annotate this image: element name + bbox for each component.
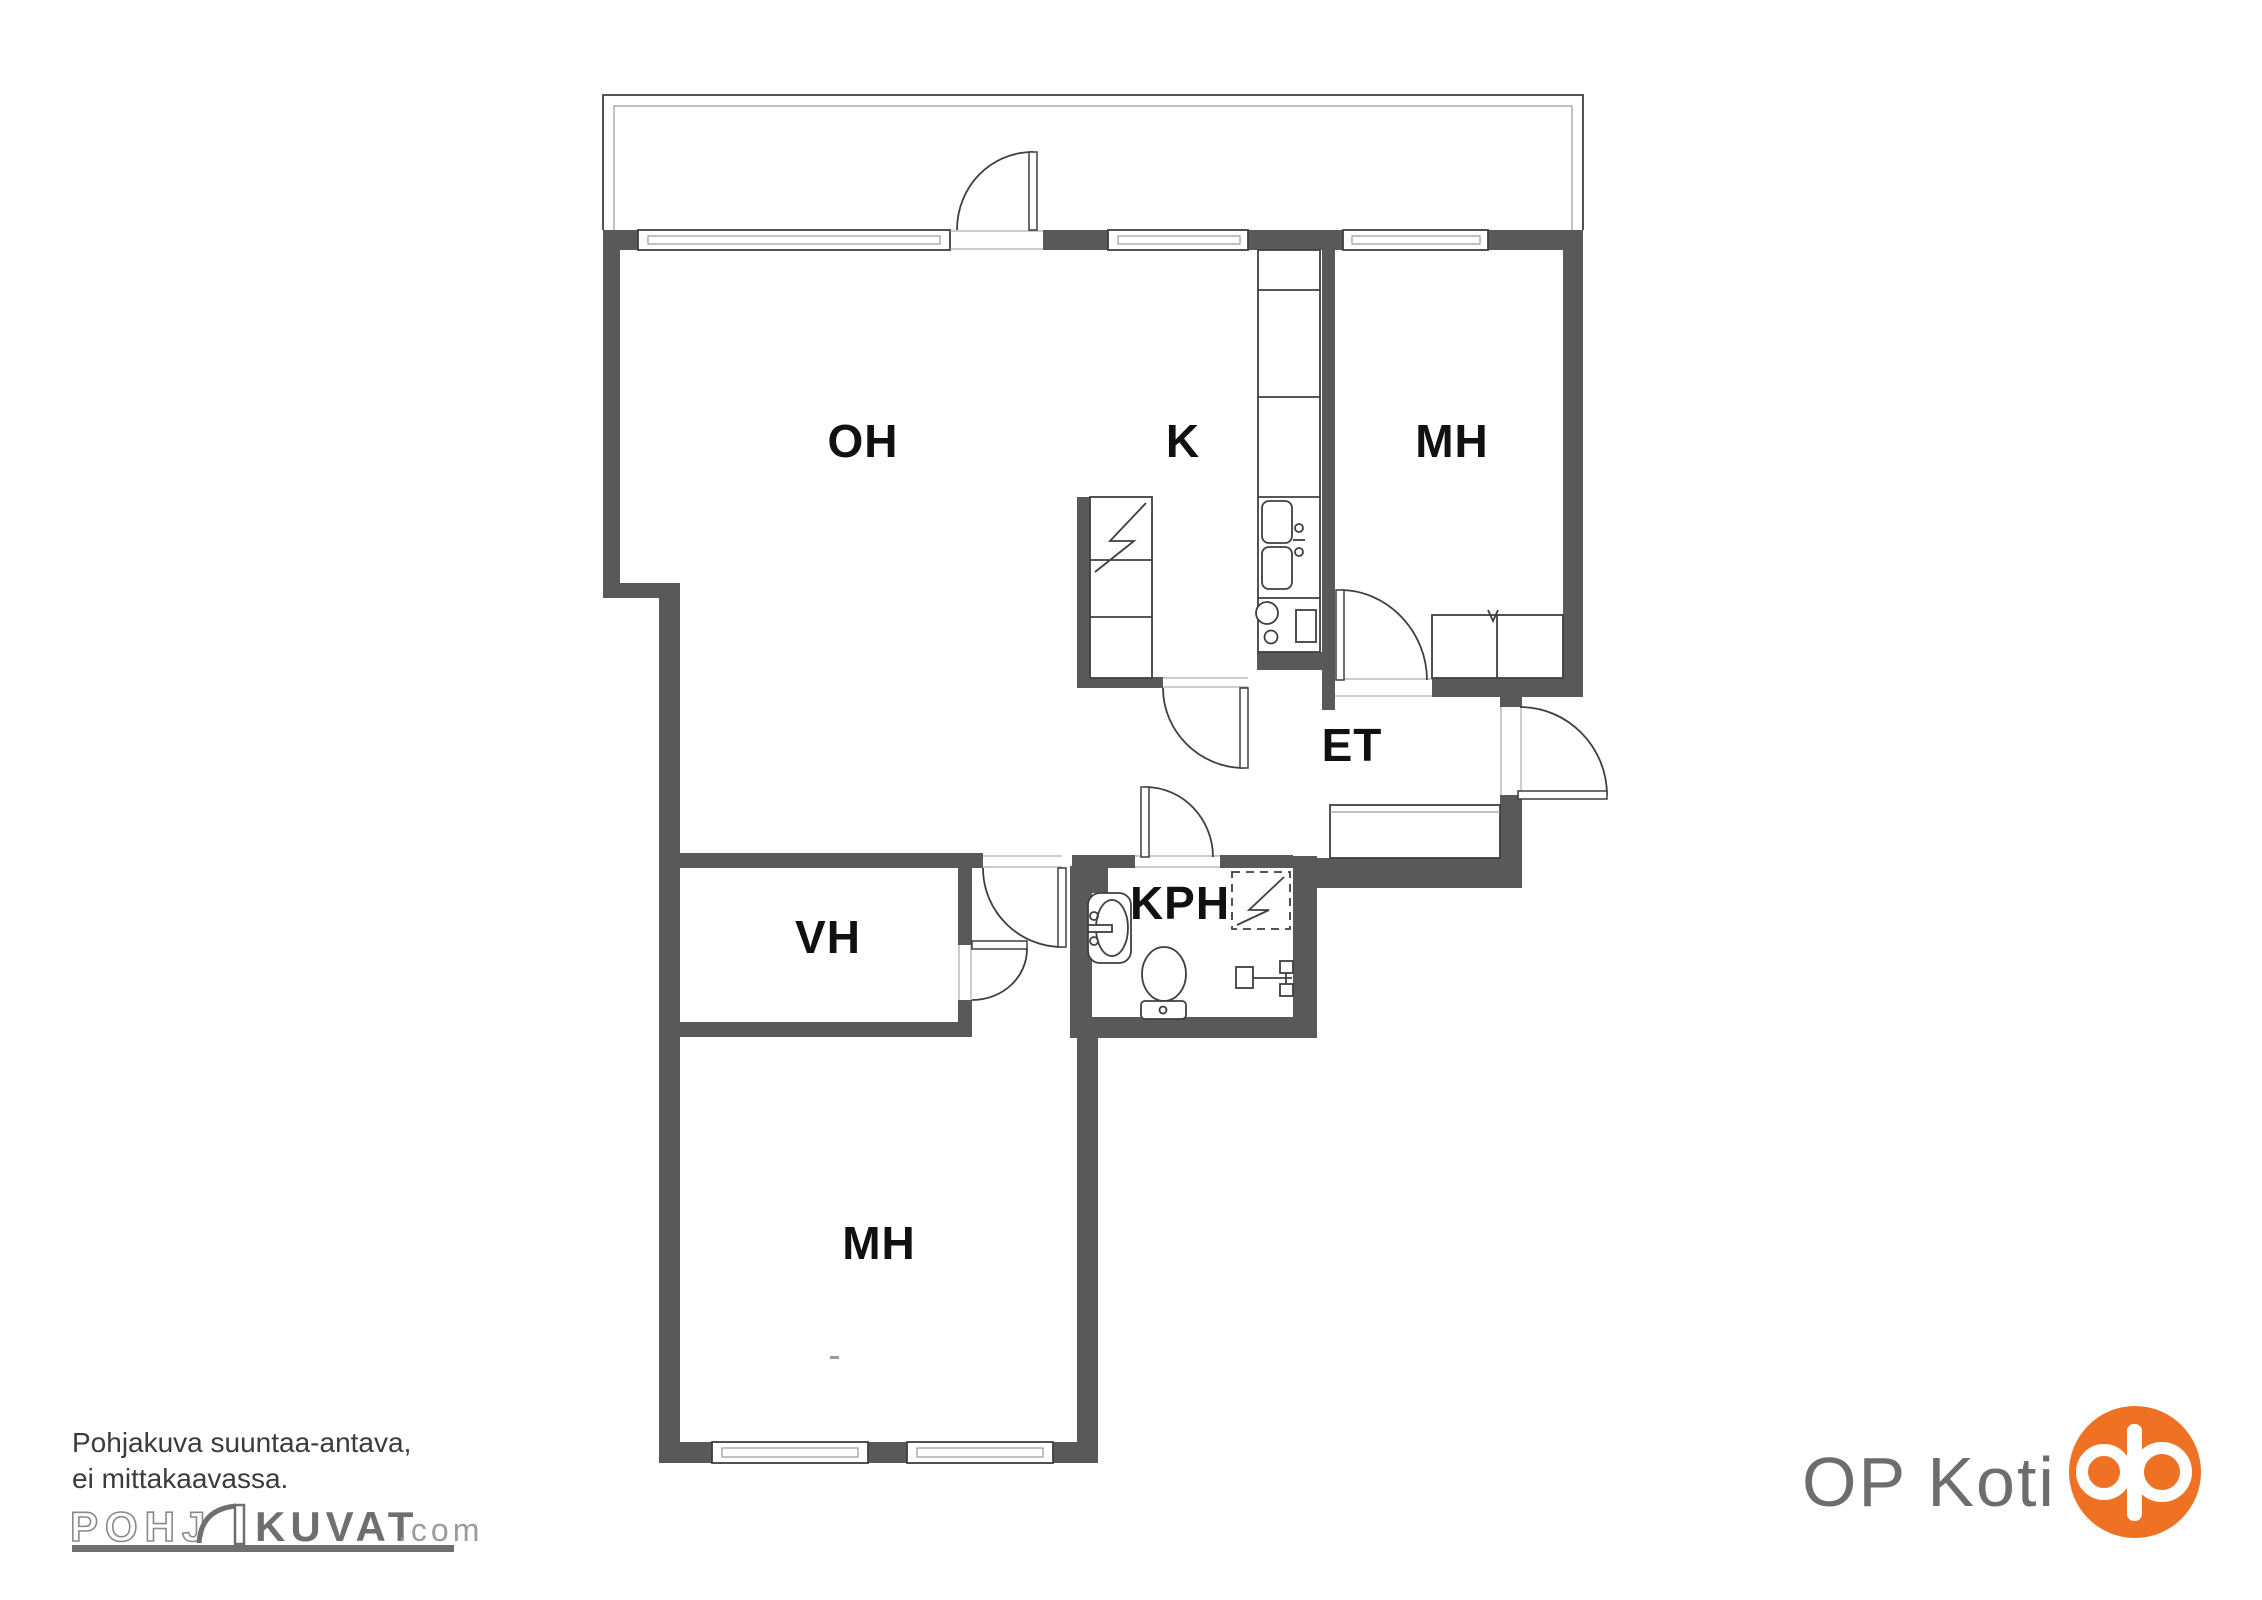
disclaimer-line-1: Pohjakuva suuntaa-antava,: [72, 1427, 411, 1458]
mh-top-door: [1336, 590, 1427, 680]
entry-door: [1518, 707, 1607, 799]
page: OH K MH ET KPH VH MH Pohjakuva suuntaa-a…: [0, 0, 2262, 1600]
kitchen-fixtures: [1090, 250, 1320, 678]
toilet: [1141, 947, 1186, 1019]
kitchen-door: [1163, 688, 1248, 768]
op-logo-icon: [2069, 1406, 2201, 1538]
disclaimer-line-2: ei mittakaavassa.: [72, 1463, 288, 1494]
oh-hall-door: [983, 868, 1066, 947]
mh-top-window: [1343, 230, 1488, 250]
room-label-kph: KPH: [1130, 877, 1230, 929]
washbasin: [1088, 893, 1131, 963]
kph-door: [1141, 787, 1213, 857]
mh-bottom-window-2: [907, 1442, 1053, 1463]
room-label-vh: VH: [795, 911, 861, 963]
pohjakuvat-logo: POHJ KUVAT .com: [70, 1503, 483, 1552]
room-label-et: ET: [1322, 719, 1383, 771]
pohjakuvat-outline-text: POHJ: [70, 1503, 212, 1550]
et-closet: [1330, 805, 1500, 858]
balcony-door: [957, 152, 1037, 230]
floor-mark: [830, 1356, 839, 1359]
disclaimer: Pohjakuva suuntaa-antava, ei mittakaavas…: [72, 1427, 411, 1494]
floor-plan-canvas: OH K MH ET KPH VH MH Pohjakuva suuntaa-a…: [0, 0, 2262, 1600]
pohjakuvat-solid-text: KUVAT: [255, 1503, 418, 1550]
op-koti-text: OP Koti: [1802, 1443, 2056, 1521]
oh-window: [638, 230, 950, 250]
kitchen-counter: [1258, 250, 1320, 652]
vh-door: [972, 941, 1027, 1000]
mh-wardrobe: [1432, 610, 1563, 678]
logo-underline: [72, 1545, 454, 1552]
fridge-cabinet-block: [1090, 497, 1152, 678]
op-koti-logo: OP Koti: [1802, 1406, 2201, 1538]
room-label-oh: OH: [828, 415, 899, 467]
room-label-k: K: [1166, 415, 1200, 467]
room-label-mh-top: MH: [1415, 415, 1489, 467]
room-label-mh-bottom: MH: [842, 1217, 916, 1269]
washing-machine-connection: [1236, 961, 1293, 996]
mh-bottom-window-1: [712, 1442, 868, 1463]
kitchen-window: [1108, 230, 1248, 250]
balcony-outline: [603, 95, 1583, 230]
pohjakuvat-suffix: .com: [398, 1512, 483, 1548]
shower: [1232, 872, 1290, 929]
